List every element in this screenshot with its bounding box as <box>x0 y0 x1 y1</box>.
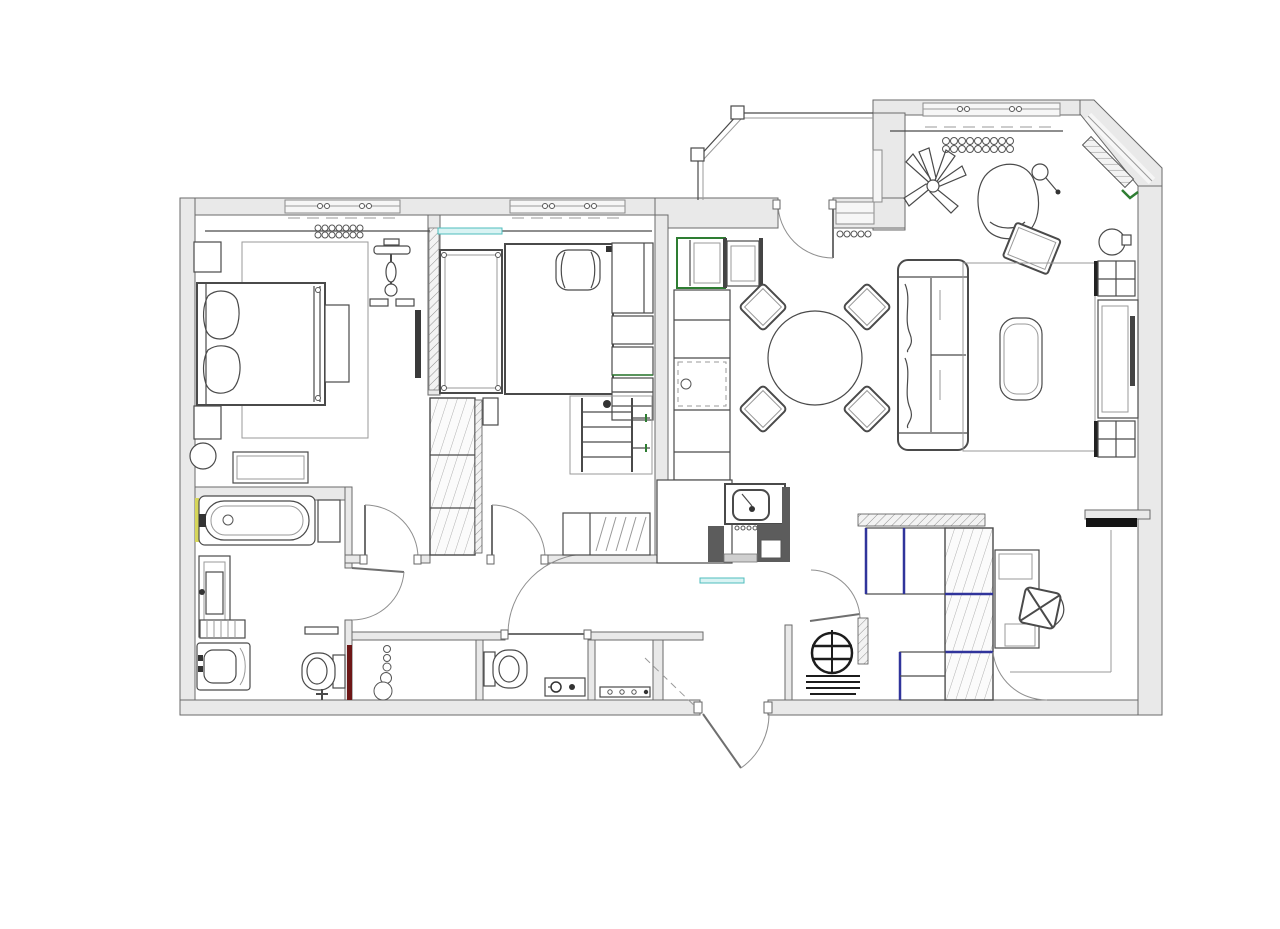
sink-counter <box>657 480 790 563</box>
coffee-table <box>1000 318 1042 400</box>
hatched-post <box>858 618 868 664</box>
sofa <box>898 260 968 450</box>
tub-cabinet <box>318 500 340 542</box>
washing-machine <box>197 643 250 690</box>
bathroom <box>195 496 345 700</box>
wc-door <box>501 554 591 639</box>
shelf-rack <box>600 687 650 697</box>
hatched-entry-wardrobe <box>858 514 993 700</box>
dining-chair <box>843 385 891 433</box>
double-bed <box>197 283 325 405</box>
towel-radiator <box>200 620 245 638</box>
side-table <box>1099 229 1131 255</box>
round-pouf <box>190 443 216 469</box>
bedroom-2 <box>430 228 653 555</box>
wall-shelving-column <box>612 243 653 420</box>
floor-plan-canvas <box>0 0 1280 929</box>
tall-cabinet-column <box>674 290 730 480</box>
bedroom-1 <box>190 225 430 483</box>
floor-drain <box>316 689 328 700</box>
shaft-hatch <box>429 228 439 390</box>
exercise-bike <box>370 239 414 306</box>
dining-chair <box>739 385 787 433</box>
double-bed-with-pillow <box>505 244 613 394</box>
bedroom-2-door <box>487 505 548 564</box>
teal-accent-strip <box>438 228 502 234</box>
desk-chair <box>1019 587 1068 631</box>
vestibule-door <box>360 505 421 564</box>
basket-stack <box>374 646 392 701</box>
floor-plan-page: { "document": { "type": "architectural-f… <box>0 0 1280 929</box>
foot-bench <box>325 305 349 382</box>
living-dining <box>739 131 1138 457</box>
counter-sink <box>545 678 585 696</box>
entry-hall <box>806 514 1137 700</box>
counter-dark-side <box>782 487 790 562</box>
side-cabinet <box>483 398 498 425</box>
wall-hung-toilet <box>484 650 527 688</box>
fridge <box>677 238 725 288</box>
single-bed <box>440 250 502 393</box>
boiler-closet <box>806 618 868 694</box>
bedside-table-top <box>194 242 221 272</box>
bathroom-door <box>352 568 404 620</box>
built-in-oven <box>723 238 763 288</box>
teal-accent-strip <box>700 578 744 583</box>
living-room-window <box>923 103 1060 127</box>
wall-shelf <box>305 627 338 634</box>
hatched-wardrobe <box>430 398 482 555</box>
striped-storage-bench <box>563 513 650 555</box>
closet-door <box>810 570 860 621</box>
green-bracket <box>1122 190 1138 198</box>
wall-mounted-tv <box>1086 518 1137 527</box>
wall-mirror <box>415 310 421 378</box>
wc <box>347 645 650 700</box>
balcony-glazing <box>691 106 873 200</box>
bathtub <box>199 496 315 545</box>
dining-chair <box>843 283 891 331</box>
wall-hung-toilet <box>302 653 345 690</box>
dining-table <box>768 311 862 405</box>
maroon-accent <box>347 645 352 700</box>
balcony-door <box>773 200 836 258</box>
bedside-table-bottom <box>194 406 221 439</box>
corner-arc <box>993 652 1047 700</box>
tv-screen <box>1130 316 1135 386</box>
potted-plant <box>904 148 966 213</box>
tv-wall-unit <box>1094 261 1138 457</box>
dining-chair <box>739 283 787 331</box>
dresser <box>233 452 308 483</box>
counter-dark-left <box>708 526 724 562</box>
